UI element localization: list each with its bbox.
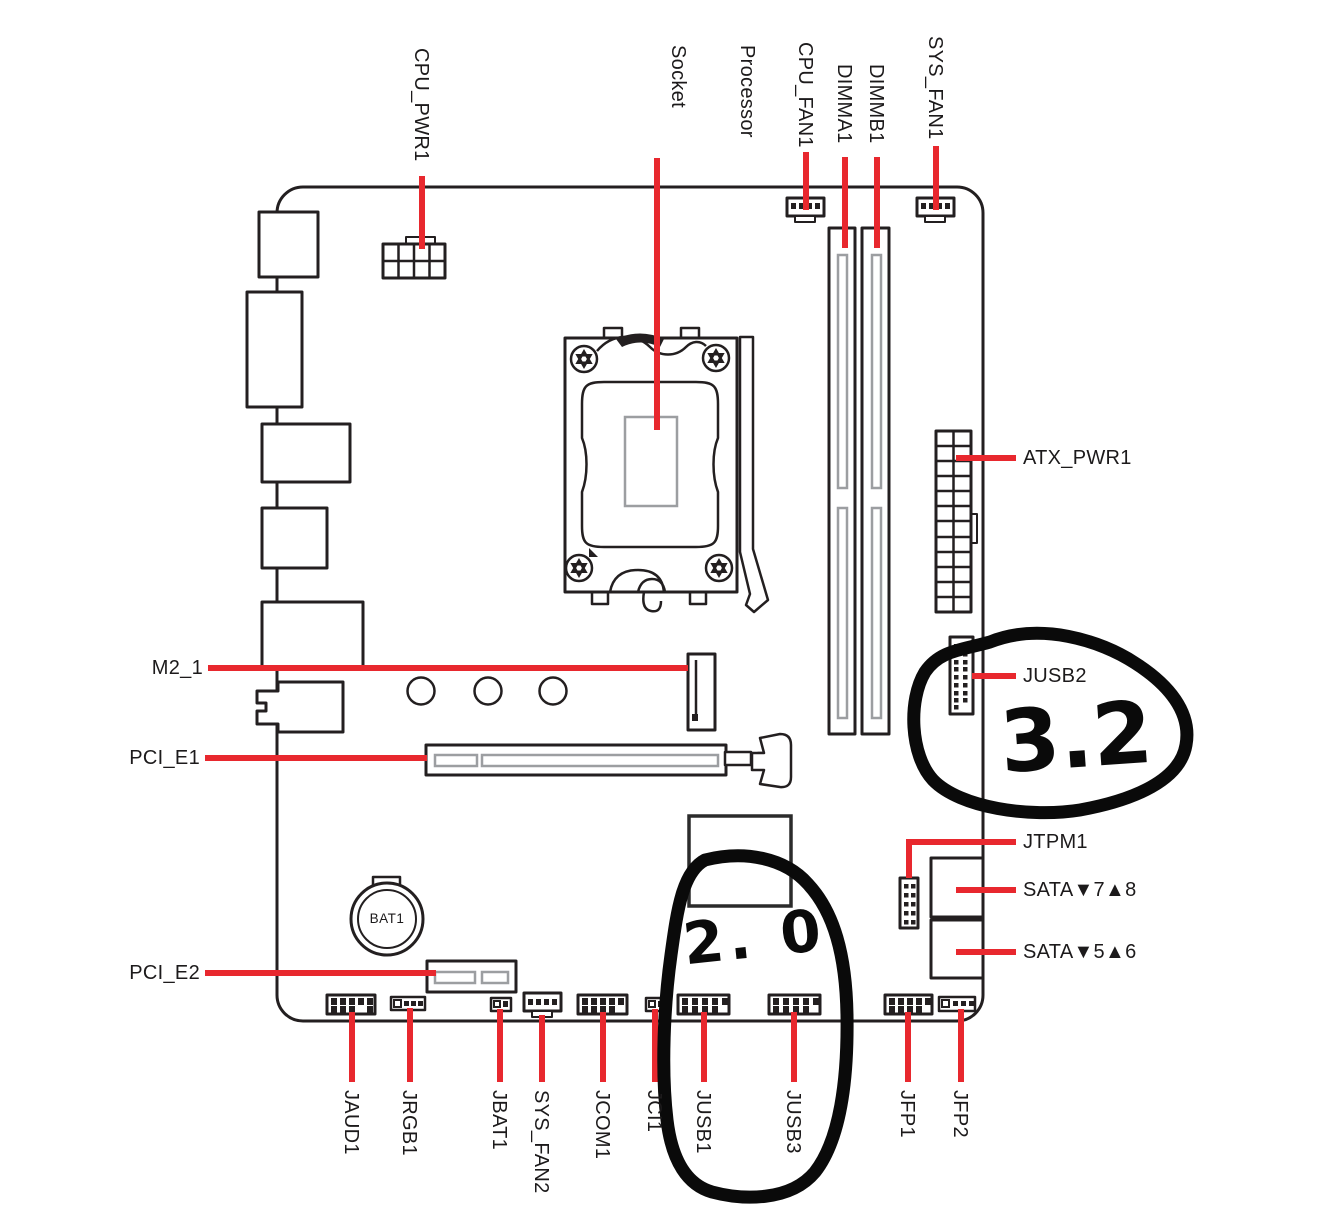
jcom1-header	[578, 995, 627, 1014]
handwritten-usb32-note: 3.2	[997, 683, 1156, 793]
label-processor-socket: Processor Socket	[620, 45, 804, 138]
dimm-slot-a	[829, 228, 855, 734]
label-sata-7-8: SATA▼7▲8	[1023, 879, 1137, 902]
audio-jack-block	[257, 682, 343, 732]
m2-standoff-hole	[475, 678, 502, 705]
pcie-x1-slot	[427, 961, 516, 992]
label-atx-pwr1: ATX_PWR1	[1023, 447, 1132, 470]
label-pci-e1: PCI_E1	[95, 747, 200, 770]
label-jusb3: JUSB3	[781, 1090, 804, 1154]
board-line-art	[0, 0, 1330, 1225]
label-dimmb1: DIMMB1	[864, 64, 887, 144]
label-sys-fan1: SYS_FAN1	[923, 36, 946, 140]
battery-label: BAT1	[359, 911, 415, 926]
usb20-header-jusb1	[678, 995, 729, 1014]
label-jusb1: JUSB1	[691, 1090, 714, 1154]
jaud1-header	[327, 995, 375, 1014]
label-sys-fan2: SYS_FAN2	[529, 1090, 552, 1194]
pcie-latch-arm	[725, 752, 751, 765]
label-dimma1: DIMMA1	[832, 64, 855, 144]
label-cpu-fan1: CPU_FAN1	[793, 42, 816, 148]
label-pci-e2: PCI_E2	[95, 962, 200, 985]
label-jfp2: JFP2	[948, 1090, 971, 1138]
cpu-socket	[565, 328, 768, 612]
label-jci1: JCI1	[642, 1090, 665, 1132]
m2-standoff-hole	[408, 678, 435, 705]
label-jrgb1: JRGB1	[397, 1090, 420, 1156]
usb20-header-jusb3	[769, 995, 820, 1014]
jtpm1-header	[900, 878, 918, 928]
label-sata-5-6: SATA▼5▲6	[1023, 941, 1137, 964]
jfp1-header	[885, 995, 932, 1014]
m2-standoff-hole	[540, 678, 567, 705]
label-jtpm1: JTPM1	[1023, 831, 1088, 854]
socket-center-pad	[625, 417, 677, 506]
label-jbat1: JBAT1	[487, 1090, 510, 1150]
label-cpu-pwr1: CPU_PWR1	[409, 48, 432, 162]
label-jcom1: JCOM1	[590, 1090, 613, 1159]
label-jusb2: JUSB2	[1023, 665, 1087, 688]
jfp2-header	[939, 997, 975, 1011]
cpu-power-connector	[383, 237, 445, 278]
label-jaud1: JAUD1	[339, 1090, 362, 1155]
dimm-slot-b	[862, 228, 889, 734]
label-processor-socket-line2: Socket	[666, 45, 689, 138]
motherboard-connector-diagram: CPU_PWR1 Processor Socket CPU_FAN1 DIMMA…	[0, 0, 1330, 1225]
label-jfp1: JFP1	[895, 1090, 918, 1138]
label-m2-1: M2_1	[98, 657, 203, 680]
label-processor-socket-line1: Processor	[735, 45, 758, 138]
